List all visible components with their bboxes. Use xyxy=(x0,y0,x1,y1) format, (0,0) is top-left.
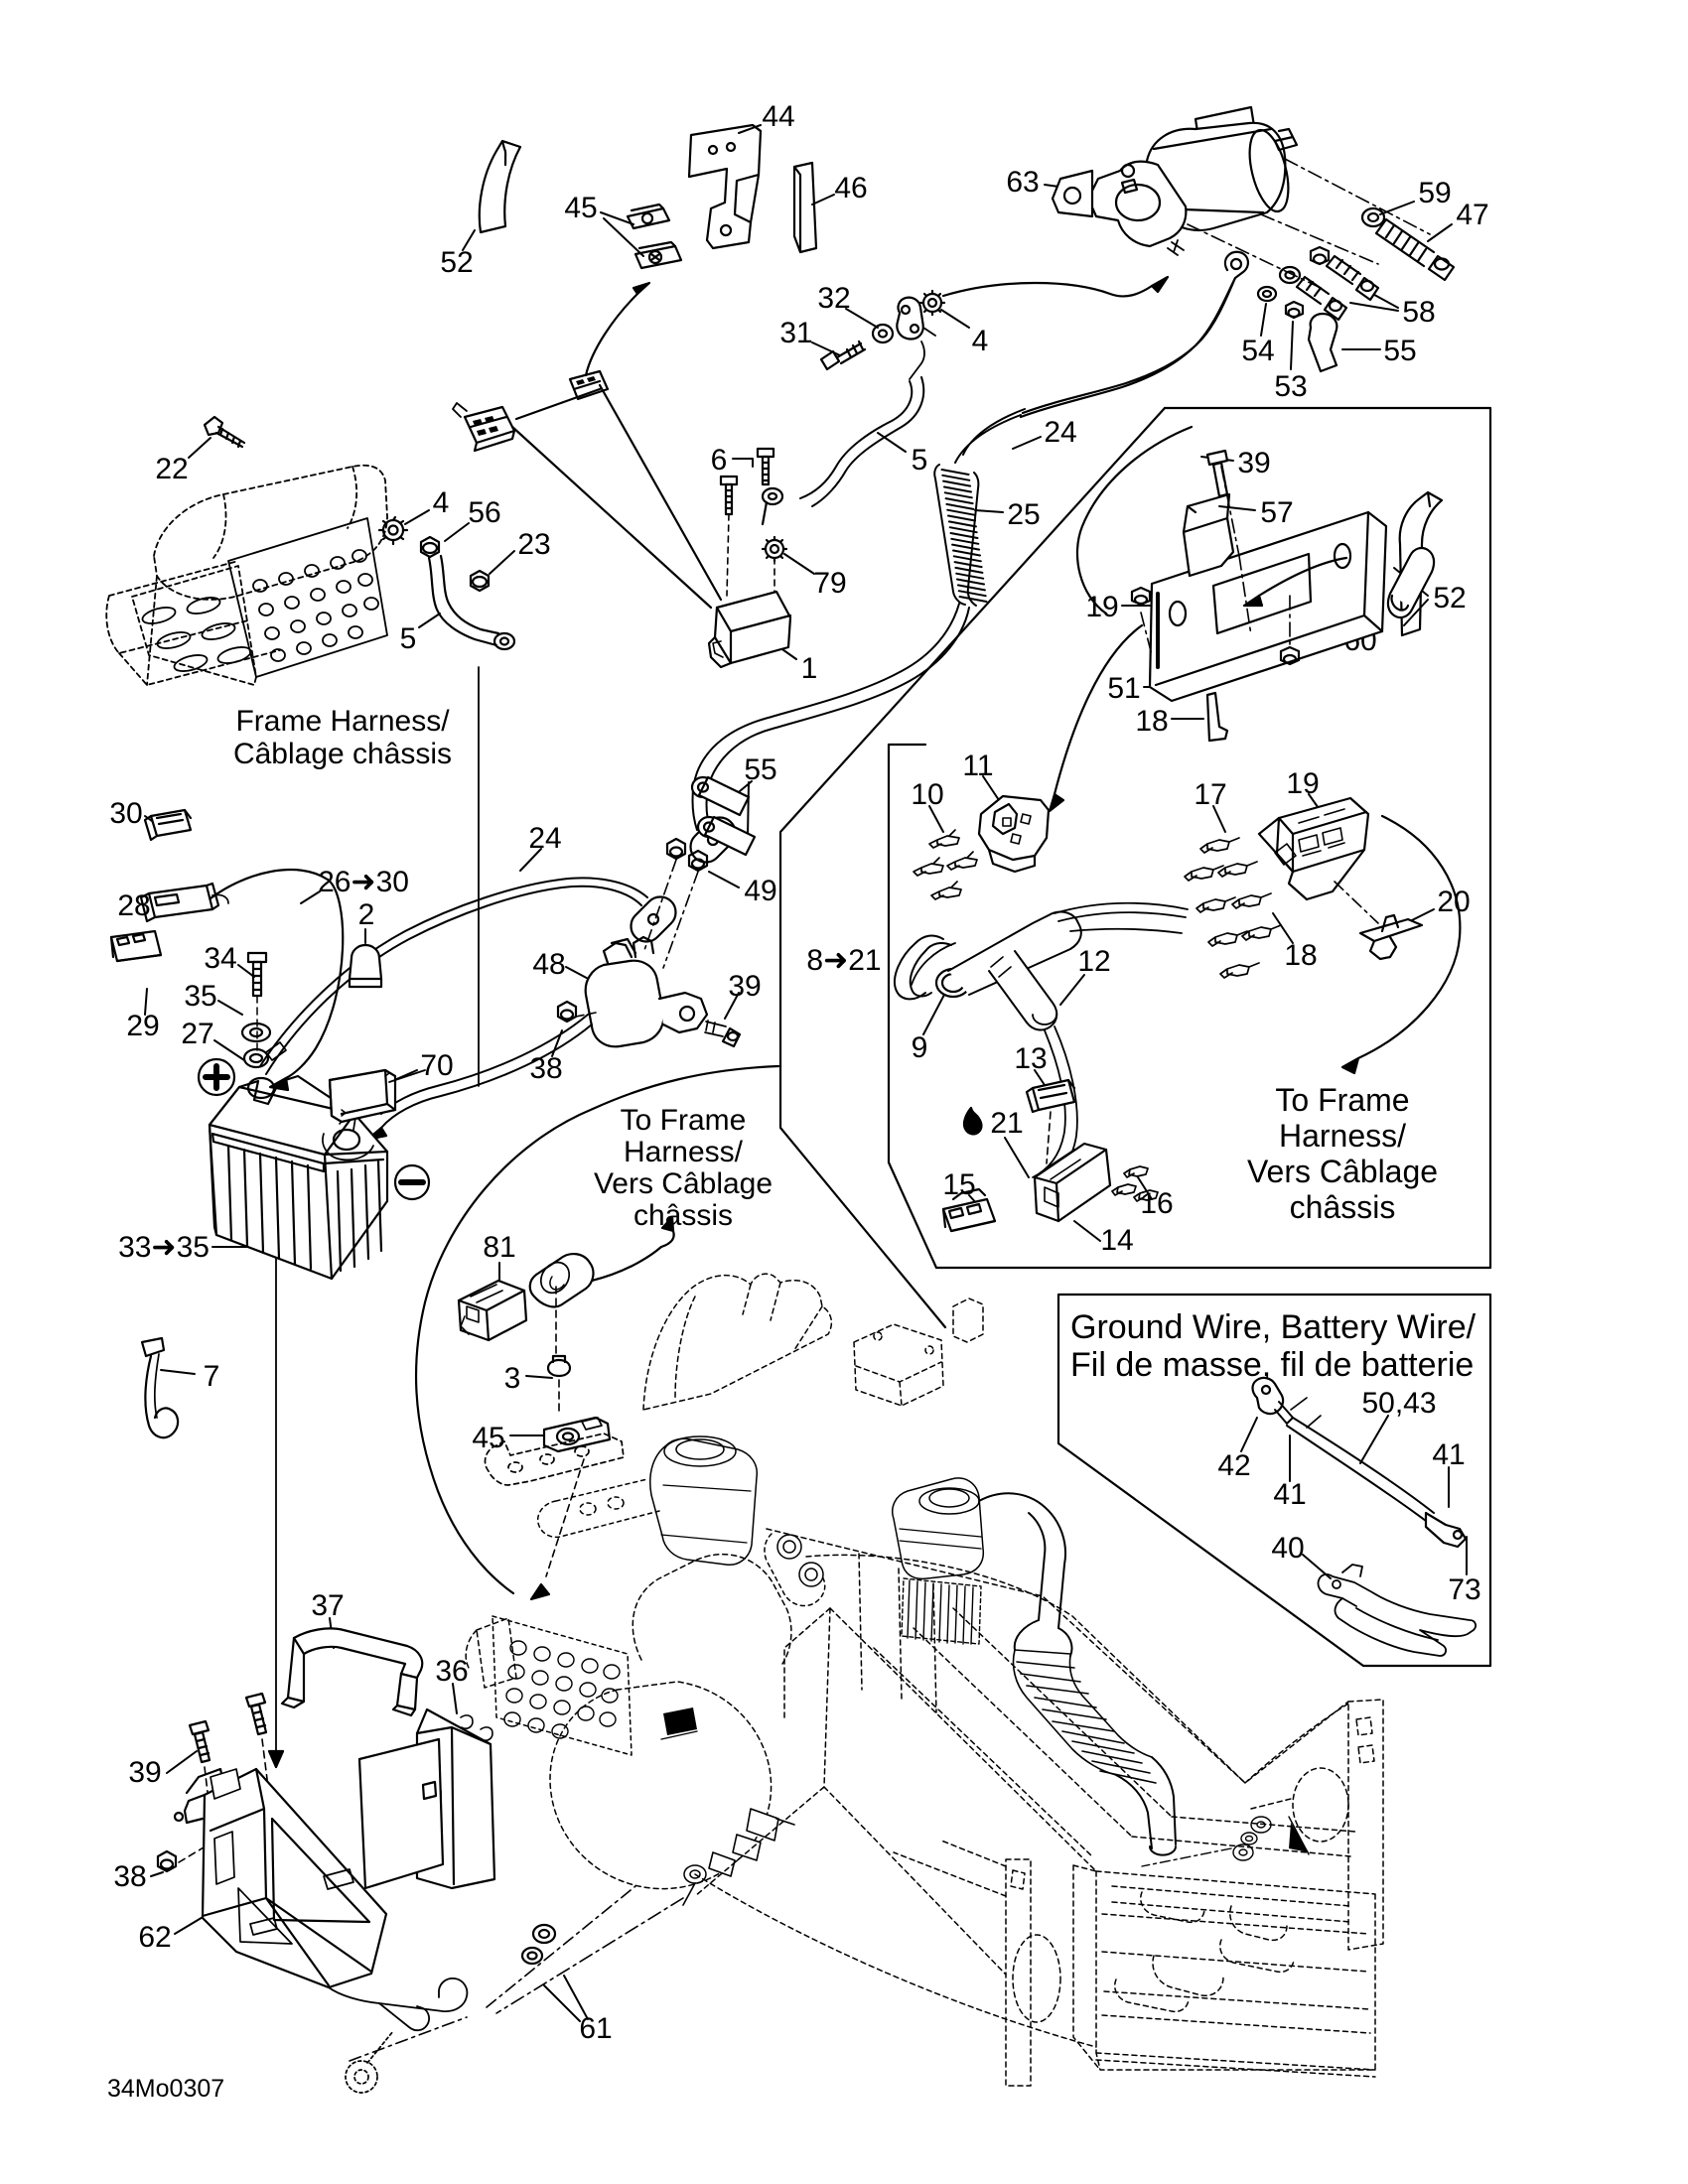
svg-text:Harness/: Harness/ xyxy=(624,1136,744,1168)
svg-text:45: 45 xyxy=(564,192,597,224)
svg-text:34: 34 xyxy=(204,942,236,975)
svg-text:38: 38 xyxy=(113,1860,146,1893)
svg-text:47: 47 xyxy=(1456,199,1488,231)
svg-text:58: 58 xyxy=(1402,296,1435,329)
svg-text:4: 4 xyxy=(433,486,450,519)
svg-text:Ground Wire, Battery Wire/: Ground Wire, Battery Wire/ xyxy=(1070,1308,1477,1346)
svg-text:42: 42 xyxy=(1217,1449,1250,1482)
svg-text:44: 44 xyxy=(762,100,794,133)
svg-text:23: 23 xyxy=(517,528,550,561)
svg-text:5: 5 xyxy=(400,622,417,655)
svg-text:30: 30 xyxy=(109,797,142,830)
svg-text:18: 18 xyxy=(1284,939,1317,972)
svg-text:To Frame: To Frame xyxy=(621,1104,747,1137)
svg-text:49: 49 xyxy=(744,875,776,907)
svg-text:19: 19 xyxy=(1286,767,1319,800)
svg-text:34Mo0307: 34Mo0307 xyxy=(107,2075,224,2103)
svg-text:48: 48 xyxy=(532,948,565,981)
svg-text:53: 53 xyxy=(1274,370,1307,403)
svg-text:12: 12 xyxy=(1077,945,1110,978)
svg-text:55: 55 xyxy=(744,753,776,786)
svg-text:7: 7 xyxy=(204,1360,220,1393)
svg-text:54: 54 xyxy=(1241,335,1274,367)
svg-text:châssis: châssis xyxy=(633,1199,733,1232)
svg-text:6: 6 xyxy=(711,444,728,477)
svg-text:3: 3 xyxy=(504,1362,521,1395)
svg-text:14: 14 xyxy=(1100,1224,1133,1257)
svg-text:Frame Harness/: Frame Harness/ xyxy=(235,705,450,738)
svg-text:39: 39 xyxy=(728,970,761,1003)
svg-text:35: 35 xyxy=(184,980,216,1013)
svg-text:31: 31 xyxy=(779,317,812,349)
svg-text:24: 24 xyxy=(1044,416,1076,449)
svg-text:81: 81 xyxy=(483,1231,515,1264)
svg-text:19: 19 xyxy=(1085,591,1118,623)
svg-text:27: 27 xyxy=(181,1018,213,1050)
svg-text:52: 52 xyxy=(440,246,473,279)
svg-text:39: 39 xyxy=(1237,447,1270,479)
svg-text:Fil de masse, fil de batterie: Fil de masse, fil de batterie xyxy=(1070,1346,1474,1384)
svg-text:22: 22 xyxy=(155,453,188,485)
svg-text:21: 21 xyxy=(990,1107,1023,1140)
svg-text:25: 25 xyxy=(1007,498,1040,531)
svg-text:57: 57 xyxy=(1260,496,1293,529)
svg-text:37: 37 xyxy=(311,1589,344,1622)
svg-text:38: 38 xyxy=(529,1052,562,1085)
svg-text:50,43: 50,43 xyxy=(1361,1387,1436,1420)
svg-text:33➜35: 33➜35 xyxy=(118,1231,210,1264)
svg-text:79: 79 xyxy=(813,567,846,600)
svg-text:45: 45 xyxy=(472,1422,504,1454)
svg-text:73: 73 xyxy=(1448,1573,1480,1606)
svg-text:63: 63 xyxy=(1006,166,1039,199)
svg-text:29: 29 xyxy=(126,1010,159,1042)
svg-text:8➜21: 8➜21 xyxy=(806,944,881,977)
svg-text:Vers Câblage: Vers Câblage xyxy=(594,1167,773,1200)
svg-text:39: 39 xyxy=(128,1756,161,1789)
svg-text:13: 13 xyxy=(1014,1042,1047,1075)
svg-text:41: 41 xyxy=(1273,1478,1306,1511)
svg-text:10: 10 xyxy=(911,778,943,811)
svg-text:Câblage châssis: Câblage châssis xyxy=(233,738,452,770)
svg-text:9: 9 xyxy=(912,1031,928,1064)
svg-text:61: 61 xyxy=(579,2012,612,2045)
svg-text:4: 4 xyxy=(972,325,989,357)
svg-text:Harness/: Harness/ xyxy=(1279,1118,1406,1154)
svg-text:17: 17 xyxy=(1194,778,1226,811)
svg-text:24: 24 xyxy=(528,822,561,855)
svg-text:46: 46 xyxy=(834,172,867,205)
svg-text:62: 62 xyxy=(138,1921,171,1954)
svg-text:55: 55 xyxy=(1383,335,1416,367)
svg-text:1: 1 xyxy=(801,652,818,685)
svg-text:5: 5 xyxy=(912,444,928,477)
svg-text:40: 40 xyxy=(1271,1532,1304,1565)
svg-text:32: 32 xyxy=(817,282,850,315)
svg-text:châssis: châssis xyxy=(1290,1189,1396,1225)
svg-text:2: 2 xyxy=(358,898,375,931)
svg-text:11: 11 xyxy=(962,750,993,782)
svg-text:51: 51 xyxy=(1107,672,1140,705)
svg-text:52: 52 xyxy=(1433,582,1466,614)
svg-text:56: 56 xyxy=(468,496,500,529)
svg-text:To Frame: To Frame xyxy=(1275,1082,1409,1118)
svg-text:59: 59 xyxy=(1418,177,1451,209)
svg-text:18: 18 xyxy=(1135,705,1168,738)
svg-text:Vers Câblage: Vers Câblage xyxy=(1247,1154,1438,1189)
svg-text:36: 36 xyxy=(435,1655,468,1688)
svg-text:70: 70 xyxy=(420,1049,453,1082)
